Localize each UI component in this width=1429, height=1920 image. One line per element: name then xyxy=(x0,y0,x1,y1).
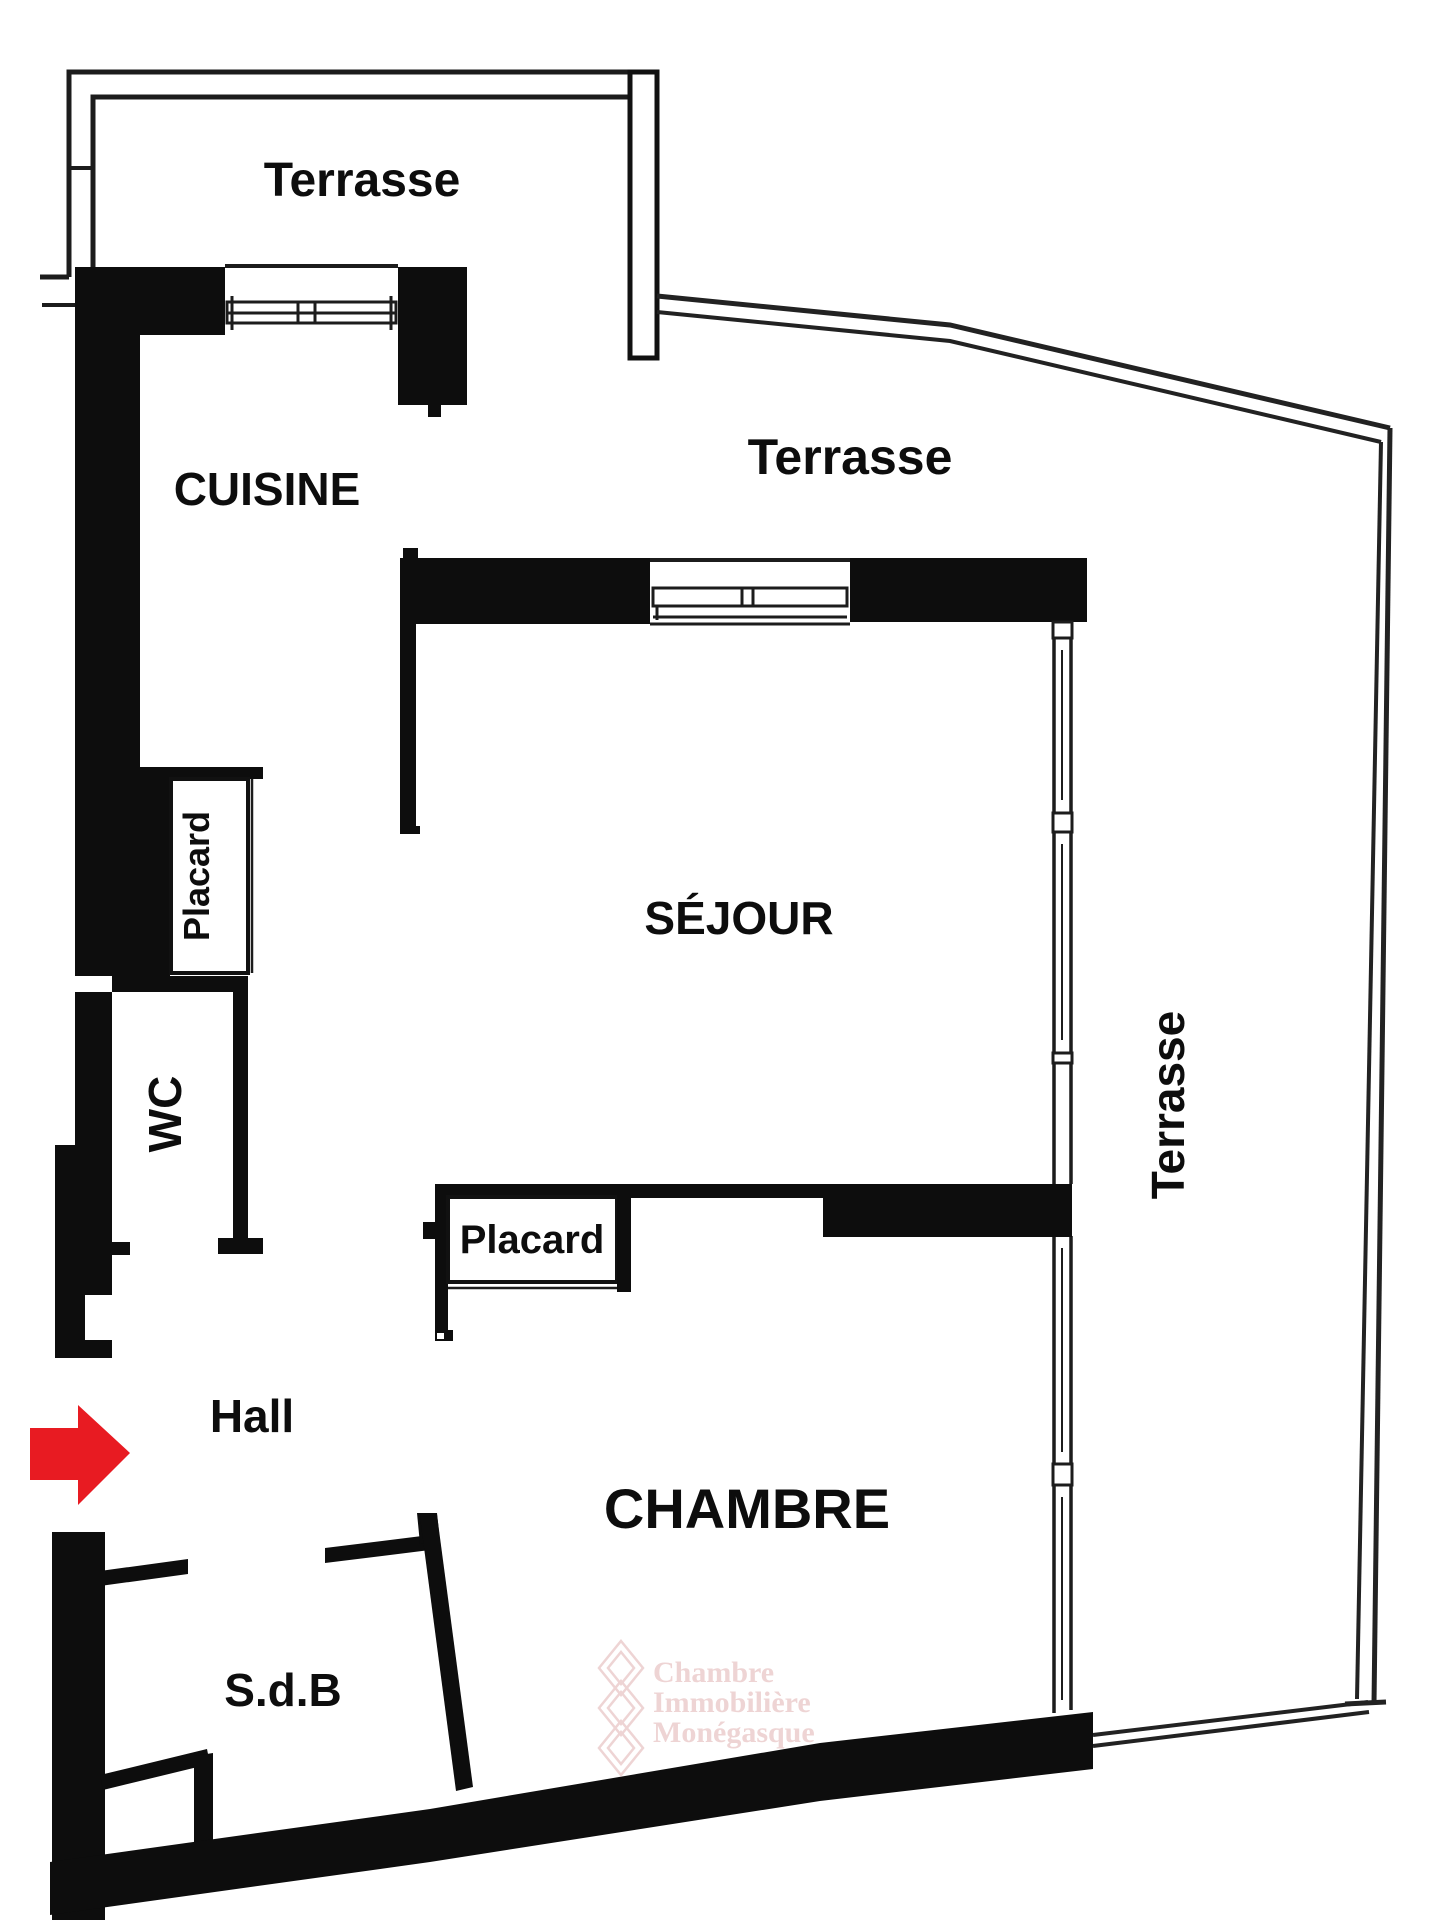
wall-notch xyxy=(403,548,418,558)
terrace-slant-outer-line xyxy=(657,296,1390,428)
watermark-line3: Monégasque xyxy=(653,1716,815,1749)
wall-recess xyxy=(85,1295,112,1340)
wall-pillar xyxy=(398,267,467,405)
living-north-wall-right xyxy=(850,558,1087,622)
terrace-slant-inner-line xyxy=(657,312,1381,442)
terrace-corner-tick xyxy=(1345,1702,1386,1704)
floor-plan: Chambre Immobilière Monégasque Terrasse … xyxy=(0,0,1429,1920)
wall-notch xyxy=(428,405,441,417)
bathroom-north-wall-right xyxy=(325,1535,430,1563)
terrace-top-right-wall xyxy=(630,72,657,358)
closet-east-wall xyxy=(617,1188,631,1292)
window-frame xyxy=(653,588,847,606)
closet-foot-gap xyxy=(437,1333,444,1339)
living-room-walls xyxy=(400,548,1087,834)
label-hall: Hall xyxy=(210,1390,294,1442)
window-transom-box xyxy=(1053,1053,1072,1063)
east-window-wall xyxy=(1053,622,1072,1713)
window-top-box xyxy=(1053,622,1072,638)
label-bathroom: S.d.B xyxy=(224,1664,342,1716)
living-west-wall xyxy=(400,624,416,830)
wall-foot xyxy=(400,826,420,834)
label-terrace-top: Terrasse xyxy=(264,154,461,207)
label-terrace-right: Terrasse xyxy=(1142,1011,1194,1199)
kitchen-window xyxy=(227,296,396,330)
bathroom-north-wall-left xyxy=(100,1559,188,1586)
bathroom-closet-top-bar xyxy=(100,1749,210,1790)
label-bedroom: CHAMBRE xyxy=(604,1477,890,1540)
kitchen-west-wall xyxy=(75,267,140,769)
watermark-line1: Chambre xyxy=(653,1656,774,1689)
label-hall-closet: Placard xyxy=(176,811,217,941)
wc-wall-foot xyxy=(218,1238,263,1254)
watermark-line2: Immobilière xyxy=(653,1686,811,1719)
wc-north-bar xyxy=(112,976,248,992)
wc-west-wall xyxy=(75,992,112,1145)
label-bedroom-closet: Placard xyxy=(460,1218,605,1262)
wc-east-wall xyxy=(233,992,248,1240)
bedroom-closet xyxy=(423,1184,631,1341)
window-transom-box xyxy=(1053,813,1072,832)
label-terrace-middle: Terrasse xyxy=(748,429,953,485)
window-transom-box xyxy=(1053,1464,1072,1485)
wc-door-post xyxy=(98,1242,130,1255)
divider-thick-wall xyxy=(823,1184,1072,1237)
bathroom-east-wall xyxy=(420,1515,473,1791)
label-kitchen: CUISINE xyxy=(174,463,361,515)
entrance-arrow-icon xyxy=(30,1405,130,1505)
floor-plan-drawing: Chambre Immobilière Monégasque Terrasse … xyxy=(0,0,1429,1920)
closet-tick xyxy=(423,1222,435,1239)
label-living: SÉJOUR xyxy=(644,892,833,944)
living-north-wall-left xyxy=(400,558,650,624)
label-wc: WC xyxy=(139,1076,191,1153)
living-window xyxy=(650,588,850,624)
watermark-diamonds-icon xyxy=(599,1641,643,1775)
closet-side-wall xyxy=(75,767,170,976)
